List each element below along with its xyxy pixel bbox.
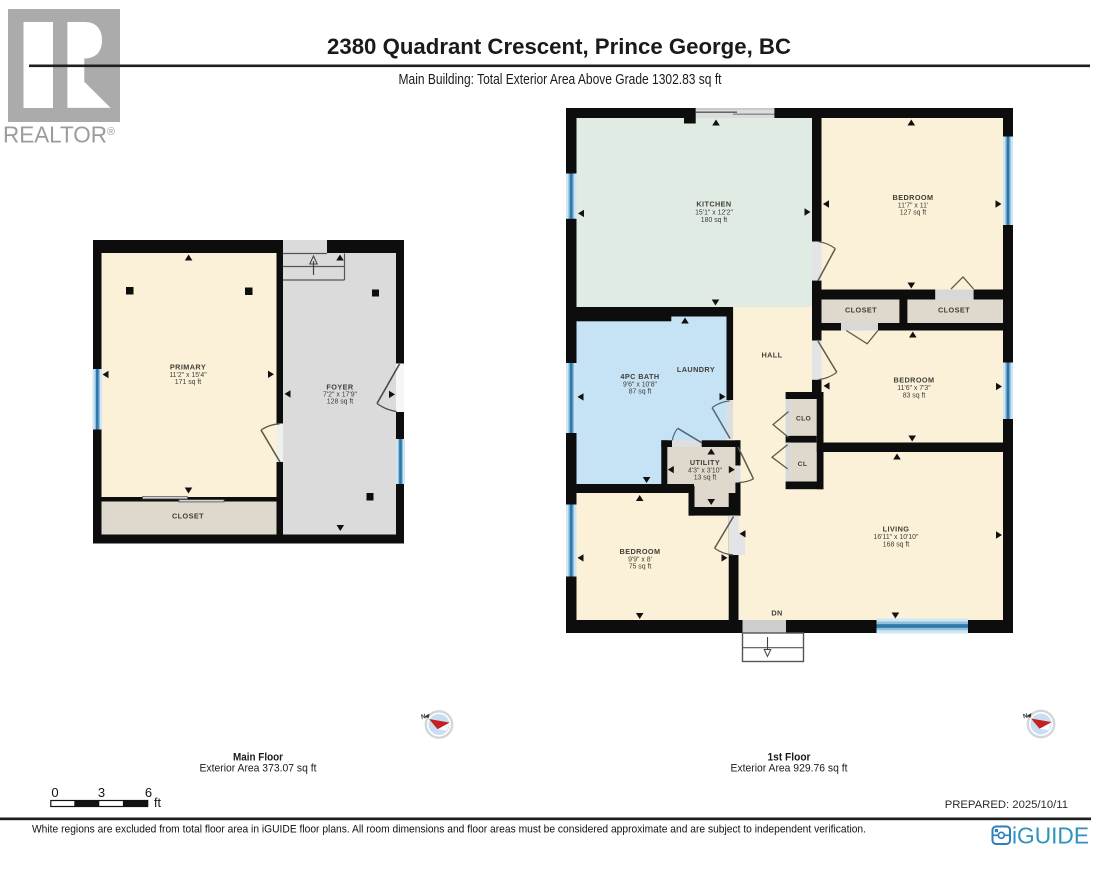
- svg-text:Main Building: Total Exterior: Main Building: Total Exterior Area Above…: [399, 71, 723, 88]
- svg-text:7'2" x 17'9": 7'2" x 17'9": [323, 392, 358, 399]
- svg-text:11'2" x 15'4": 11'2" x 15'4": [169, 372, 207, 379]
- svg-text:6: 6: [145, 785, 152, 800]
- svg-text:KITCHEN: KITCHEN: [696, 200, 731, 209]
- svg-text:REALTOR: REALTOR: [3, 122, 107, 148]
- svg-text:BEDROOM: BEDROOM: [893, 193, 934, 202]
- svg-text:3: 3: [98, 785, 105, 800]
- svg-text:127 sq ft: 127 sq ft: [900, 210, 927, 217]
- svg-text:Exterior Area 373.07 sq ft: Exterior Area 373.07 sq ft: [200, 763, 317, 775]
- svg-text:87 sq ft: 87 sq ft: [629, 389, 652, 396]
- svg-text:75 sq ft: 75 sq ft: [629, 564, 652, 571]
- svg-text:CLOSET: CLOSET: [938, 306, 970, 315]
- svg-text:BEDROOM: BEDROOM: [620, 547, 661, 556]
- svg-text:83 sq ft: 83 sq ft: [903, 393, 926, 400]
- svg-text:CLOSET: CLOSET: [845, 306, 877, 315]
- svg-text:PREPARED: 2025/10/11: PREPARED: 2025/10/11: [945, 799, 1068, 811]
- svg-text:CLOSET: CLOSET: [172, 512, 204, 521]
- svg-text:4PC BATH: 4PC BATH: [620, 372, 659, 381]
- svg-text:FOYER: FOYER: [326, 383, 353, 392]
- svg-text:UTILITY: UTILITY: [690, 458, 720, 467]
- svg-text:CLO: CLO: [796, 416, 811, 423]
- svg-text:BEDROOM: BEDROOM: [894, 376, 935, 385]
- svg-text:LAUNDRY: LAUNDRY: [677, 365, 715, 374]
- svg-text:11'7" x 11': 11'7" x 11': [898, 203, 929, 210]
- svg-text:®: ®: [107, 126, 115, 138]
- svg-text:168 sq ft: 168 sq ft: [883, 542, 910, 549]
- svg-text:White regions are excluded fro: White regions are excluded from total fl…: [32, 824, 866, 836]
- svg-text:13 sq ft: 13 sq ft: [694, 475, 717, 482]
- svg-text:iGUIDE: iGUIDE: [1012, 823, 1089, 849]
- svg-text:180 sq ft: 180 sq ft: [701, 217, 728, 224]
- svg-text:HALL: HALL: [761, 351, 782, 360]
- svg-text:DN: DN: [771, 609, 782, 618]
- svg-text:CL: CL: [798, 461, 808, 468]
- svg-text:171 sq ft: 171 sq ft: [175, 379, 202, 386]
- svg-text:ft: ft: [154, 796, 161, 810]
- svg-text:16'11" x 10'10": 16'11" x 10'10": [874, 534, 919, 541]
- svg-text:LIVING: LIVING: [883, 525, 910, 534]
- svg-text:0: 0: [51, 785, 58, 800]
- svg-text:PRIMARY: PRIMARY: [170, 363, 206, 372]
- svg-text:4'3" x 3'10": 4'3" x 3'10": [688, 468, 723, 475]
- svg-text:9'9" x 8': 9'9" x 8': [628, 557, 652, 564]
- svg-text:15'1" x 12'2": 15'1" x 12'2": [695, 210, 733, 217]
- svg-text:Exterior Area 929.76 sq ft: Exterior Area 929.76 sq ft: [731, 763, 848, 775]
- svg-text:2380 Quadrant Crescent, Prince: 2380 Quadrant Crescent, Prince George, B…: [327, 34, 791, 59]
- svg-text:11'6" x 7'3": 11'6" x 7'3": [897, 385, 931, 392]
- svg-text:9'6" x 10'8": 9'6" x 10'8": [623, 382, 658, 389]
- svg-text:128 sq ft: 128 sq ft: [327, 399, 354, 406]
